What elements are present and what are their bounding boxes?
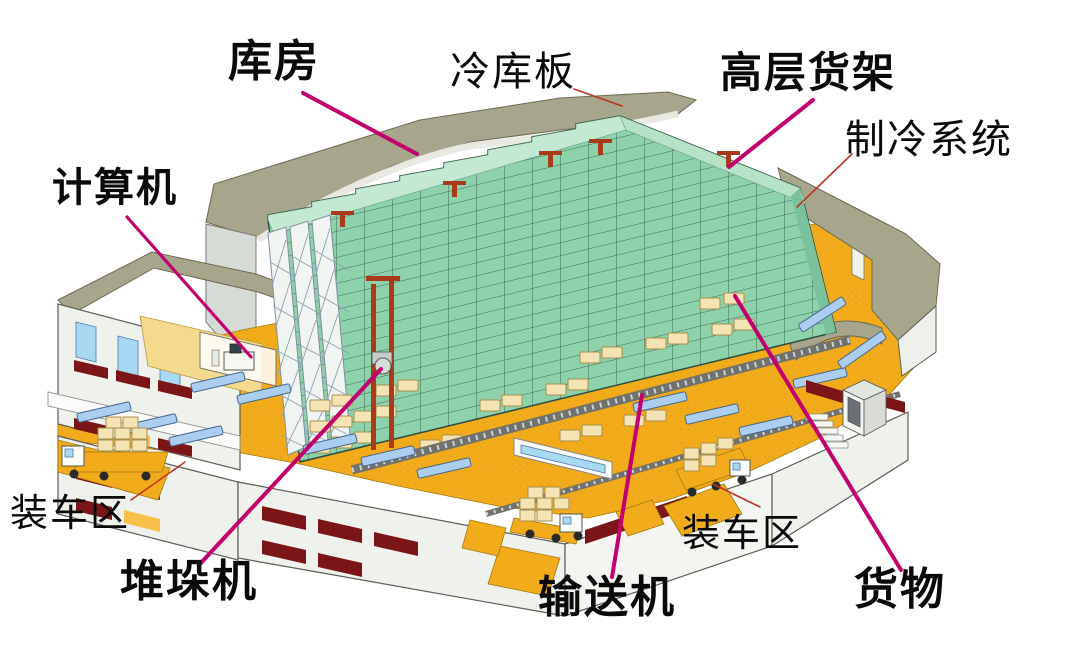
leader-gaocenghuojia <box>729 100 813 167</box>
label-kufang: 库房 <box>228 40 320 84</box>
label-shusongji: 输送机 <box>538 576 676 620</box>
label-huowu: 货物 <box>854 568 946 612</box>
label-zhuangchequ-right: 装车区 <box>682 514 802 552</box>
warehouse-diagram: 库房 冷库板 高层货架 制冷系统 计算机 装车区 堆垛机 输送机 装车区 货物 <box>0 0 1076 669</box>
label-zhilengxitong: 制冷系统 <box>845 120 1013 160</box>
label-jisuanji: 计算机 <box>52 168 178 208</box>
machine-unit <box>843 380 886 436</box>
label-lengkuban: 冷库板 <box>450 52 576 92</box>
label-duiduoji: 堆垛机 <box>120 560 258 604</box>
label-gaocenghuojia: 高层货架 <box>720 52 896 94</box>
label-zhuangchequ-left: 装车区 <box>10 494 130 532</box>
